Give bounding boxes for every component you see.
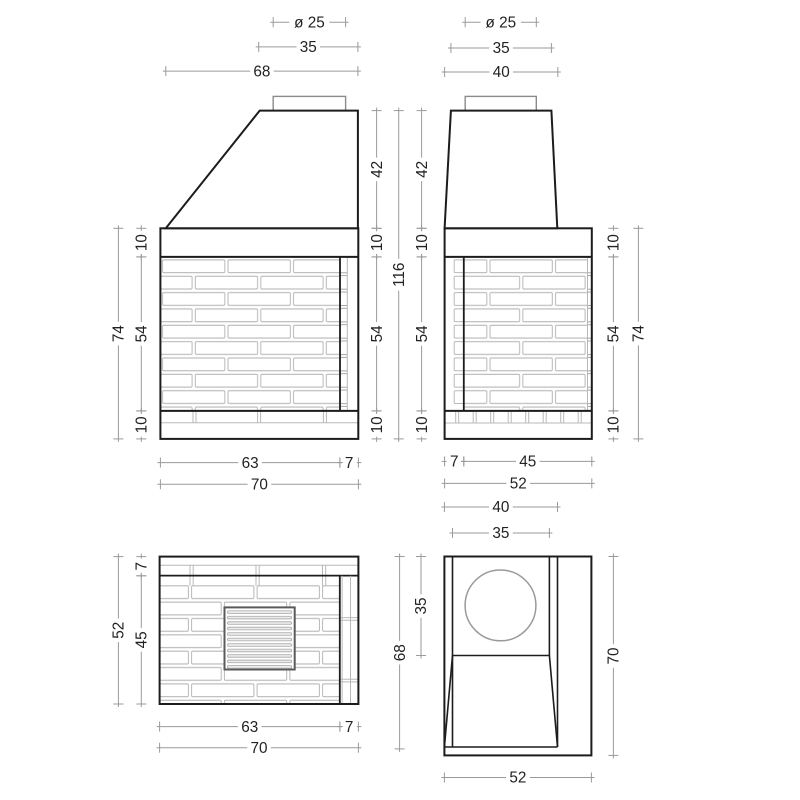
svg-text:7: 7 — [345, 719, 354, 736]
svg-text:70: 70 — [250, 740, 267, 757]
svg-text:70: 70 — [251, 477, 268, 494]
svg-text:54: 54 — [369, 325, 386, 343]
svg-text:68: 68 — [392, 644, 409, 661]
svg-text:74: 74 — [631, 325, 648, 343]
svg-text:42: 42 — [369, 161, 386, 178]
svg-text:10: 10 — [369, 234, 386, 251]
svg-text:7: 7 — [450, 454, 459, 471]
svg-text:40: 40 — [492, 499, 509, 516]
svg-text:74: 74 — [111, 325, 128, 343]
svg-text:63: 63 — [241, 719, 258, 736]
svg-text:54: 54 — [414, 325, 431, 343]
svg-text:52: 52 — [509, 770, 526, 787]
svg-text:52: 52 — [111, 622, 128, 639]
svg-text:35: 35 — [493, 40, 510, 57]
svg-text:54: 54 — [606, 325, 623, 343]
svg-text:116: 116 — [391, 263, 408, 287]
svg-text:35: 35 — [413, 597, 430, 614]
svg-text:70: 70 — [606, 647, 623, 664]
svg-text:68: 68 — [253, 63, 270, 80]
svg-text:40: 40 — [493, 64, 510, 81]
svg-text:10: 10 — [606, 416, 623, 433]
svg-text:10: 10 — [414, 234, 431, 251]
svg-text:7: 7 — [134, 562, 151, 571]
svg-text:42: 42 — [414, 161, 431, 178]
svg-text:7: 7 — [345, 455, 354, 472]
svg-text:63: 63 — [242, 455, 259, 472]
svg-text:35: 35 — [492, 525, 509, 542]
svg-text:45: 45 — [134, 631, 151, 648]
svg-text:10: 10 — [414, 416, 431, 433]
svg-text:35: 35 — [300, 39, 317, 56]
svg-text:ø 25: ø 25 — [294, 14, 325, 31]
svg-text:10: 10 — [134, 234, 151, 251]
svg-text:45: 45 — [519, 454, 536, 471]
svg-text:10: 10 — [606, 234, 623, 251]
svg-text:10: 10 — [134, 416, 151, 433]
svg-text:10: 10 — [369, 416, 386, 433]
svg-text:52: 52 — [510, 476, 527, 493]
svg-text:ø 25: ø 25 — [485, 14, 516, 31]
svg-text:54: 54 — [134, 325, 151, 343]
